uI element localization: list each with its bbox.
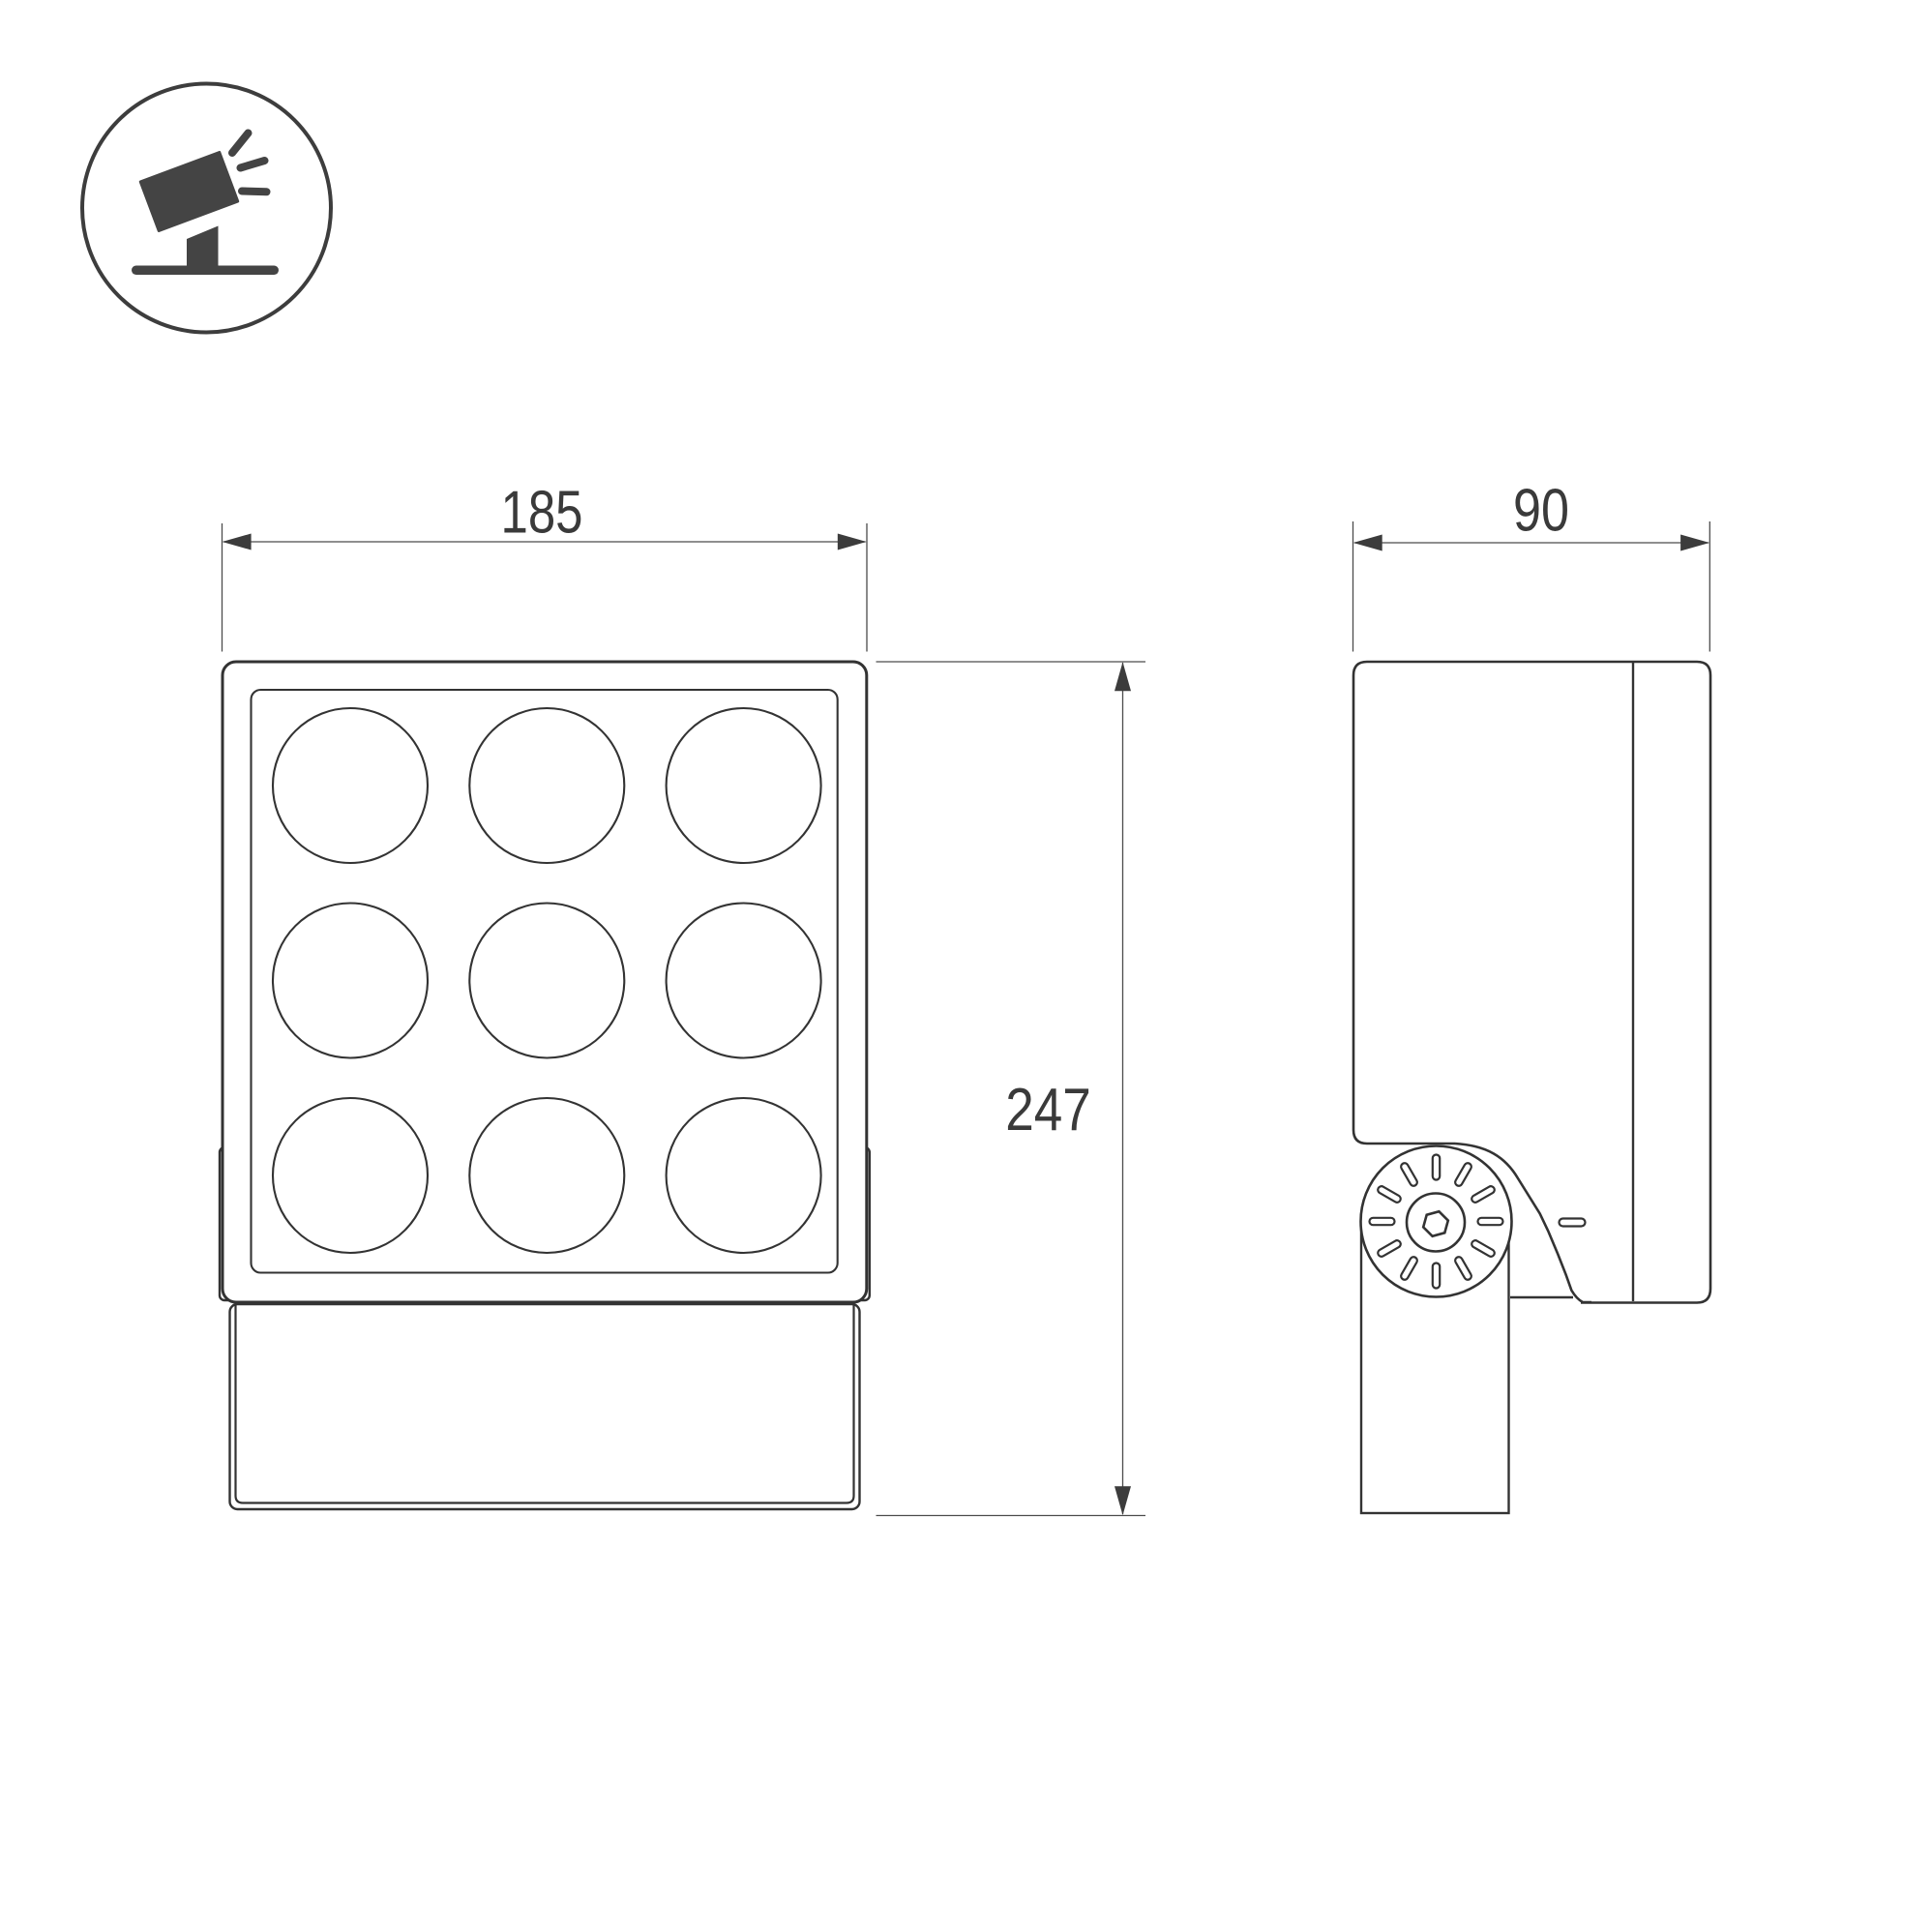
svg-text:90: 90 (1513, 478, 1569, 545)
svg-text:185: 185 (501, 479, 583, 546)
svg-text:247: 247 (1005, 1077, 1091, 1144)
